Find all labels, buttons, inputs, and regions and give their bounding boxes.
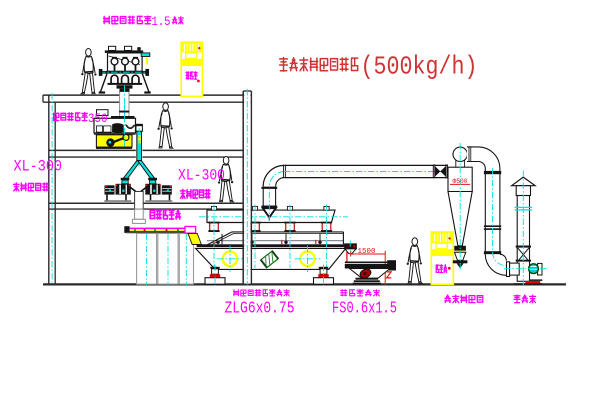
svg-text:1500: 1500 (358, 248, 376, 256)
svg-text:ZLG6x0.75: ZLG6x0.75 (225, 300, 295, 319)
svg-text:(500kg/h): (500kg/h) (361, 52, 478, 82)
svg-text:FS0.6x1.5: FS0.6x1.5 (332, 300, 397, 319)
svg-text:1.5: 1.5 (152, 15, 171, 29)
svg-text:350: 350 (88, 111, 108, 126)
svg-text:XL-300: XL-300 (14, 158, 63, 176)
svg-text:XL-300: XL-300 (178, 167, 225, 185)
